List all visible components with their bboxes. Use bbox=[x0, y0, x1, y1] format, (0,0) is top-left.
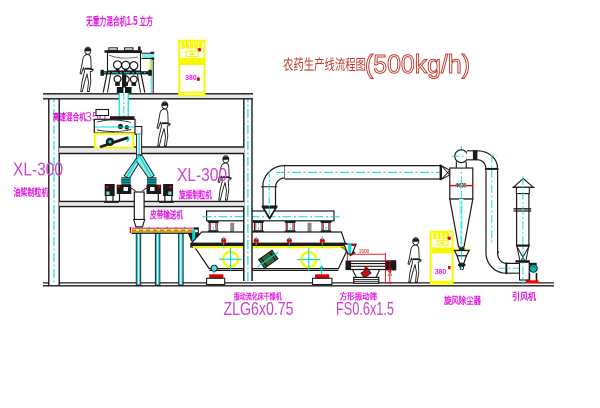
svg-text:XL-300: XL-300 bbox=[13, 160, 63, 180]
svg-text:旋振制粒机: 旋振制粒机 bbox=[178, 189, 212, 202]
svg-text:(500kg/h): (500kg/h) bbox=[365, 49, 470, 79]
svg-text:ZLG6x0.75: ZLG6x0.75 bbox=[224, 298, 294, 319]
svg-text:油桨制粒机: 油桨制粒机 bbox=[14, 186, 49, 199]
svg-text:1500: 1500 bbox=[359, 249, 370, 255]
svg-text:XL-300: XL-300 bbox=[177, 165, 227, 185]
svg-text:FS0.6x1.5: FS0.6x1.5 bbox=[336, 298, 394, 319]
svg-text:引风机: 引风机 bbox=[512, 291, 536, 303]
svg-text:380: 380 bbox=[185, 73, 196, 82]
svg-text:皮带输送机: 皮带输送机 bbox=[149, 209, 183, 222]
svg-text:无重力混合机1.5 立方: 无重力混合机1.5 立方 bbox=[85, 13, 153, 28]
svg-text:高速混合机: 高速混合机 bbox=[53, 112, 86, 124]
svg-text:541: 541 bbox=[388, 267, 394, 276]
svg-text:旋风除尘器: 旋风除尘器 bbox=[443, 295, 481, 307]
svg-text:380: 380 bbox=[435, 267, 446, 276]
svg-text:农药生产线流程图: 农药生产线流程图 bbox=[283, 57, 366, 74]
